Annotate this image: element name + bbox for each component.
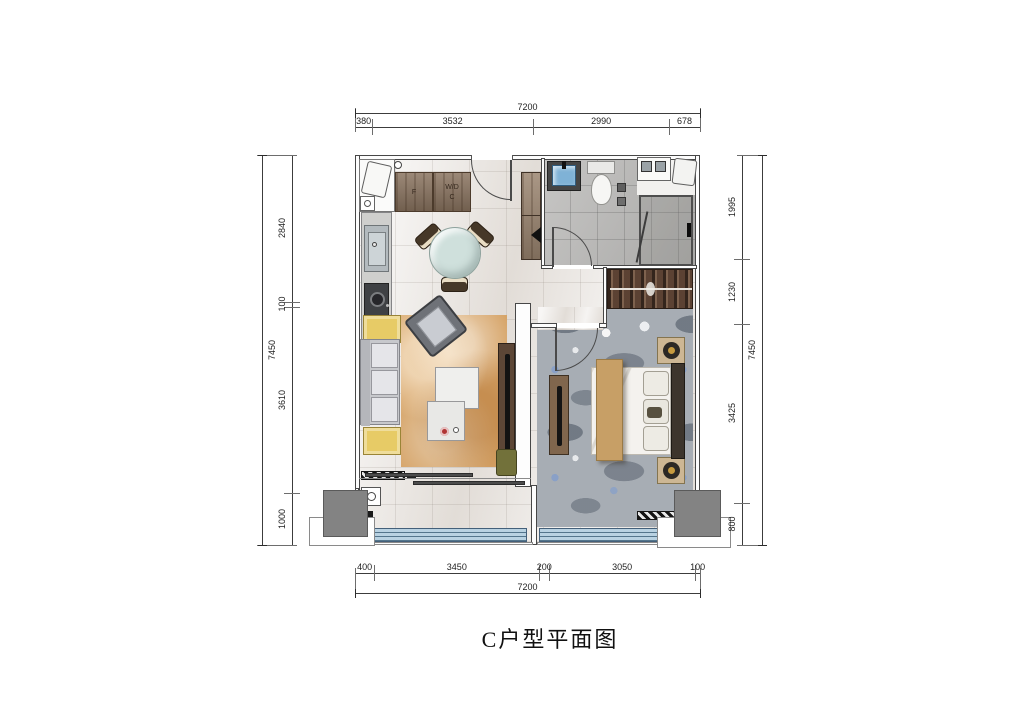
dim-right-segment-label: 1230 — [727, 282, 737, 302]
dim-bottom-segment-line — [355, 573, 700, 574]
dim-right-extension-line — [734, 503, 750, 504]
dim-top-segment-label: 2990 — [591, 116, 611, 126]
dim-bottom-overall-line — [355, 593, 700, 594]
dim-top-overall-line — [355, 113, 700, 114]
dim-bottom-extension-line — [374, 565, 375, 581]
dim-left-segment-line — [292, 155, 293, 545]
dim-left-segment-label: 1000 — [277, 509, 287, 529]
dim-right-segment-label: 800 — [727, 517, 737, 532]
dim-bottom-tick — [700, 589, 701, 598]
dim-bottom-segment-label: 100 — [690, 562, 705, 572]
dim-left-tick — [258, 545, 267, 546]
dim-bottom-segment-label: 3050 — [612, 562, 632, 572]
dim-right-extension-line — [734, 324, 750, 325]
dim-right-overall-line — [762, 155, 763, 545]
dim-top-tick — [700, 109, 701, 118]
dim-left-segment-label: 3610 — [277, 390, 287, 410]
dim-bottom-tick — [355, 589, 356, 598]
dim-right-extension-line — [734, 259, 750, 260]
dim-top-extension-line — [372, 119, 373, 135]
dim-top-segment-label: 678 — [677, 116, 692, 126]
dim-bottom-segment-label: 400 — [357, 562, 372, 572]
dim-left-total-label: 7450 — [267, 340, 277, 360]
dim-top-segment-label: 380 — [356, 116, 371, 126]
dimensions-layer: 3803532299067872004003450200305010072002… — [0, 0, 1024, 724]
page-title: C户型平面图 — [482, 622, 619, 654]
dim-right-segment-label: 1995 — [727, 197, 737, 217]
dim-top-segment-label: 3532 — [443, 116, 463, 126]
dim-right-tick — [758, 545, 767, 546]
dim-top-segment-line — [355, 127, 700, 128]
dim-right-segment-line — [742, 155, 743, 545]
dim-top-extension-line — [669, 119, 670, 135]
dim-bottom-total-label: 7200 — [517, 582, 537, 592]
dim-left-segment-label: 2840 — [277, 218, 287, 238]
floorplan-canvas: { "title": "C户型平面图", "dimensions": { "to… — [0, 0, 1024, 724]
dim-left-extension-line — [284, 493, 300, 494]
dim-right-total-label: 7450 — [747, 340, 757, 360]
dim-left-tick — [258, 155, 267, 156]
dim-bottom-segment-label: 3450 — [447, 562, 467, 572]
dim-top-extension-line — [533, 119, 534, 135]
dim-bottom-segment-label: 200 — [537, 562, 552, 572]
dim-right-segment-label: 3425 — [727, 403, 737, 423]
dim-top-total-label: 7200 — [517, 102, 537, 112]
dim-left-segment-label: 100 — [277, 297, 287, 312]
dim-right-tick — [758, 155, 767, 156]
dim-left-overall-line — [262, 155, 263, 545]
